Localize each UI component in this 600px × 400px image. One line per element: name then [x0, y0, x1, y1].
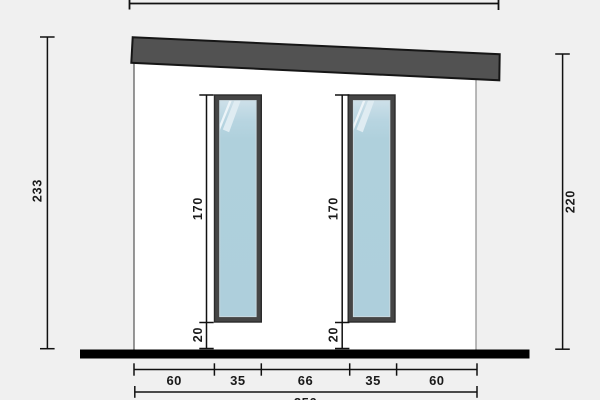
svg-text:256: 256 [294, 395, 317, 400]
svg-text:35: 35 [365, 373, 380, 388]
svg-text:66: 66 [298, 373, 313, 388]
svg-text:220: 220 [564, 190, 578, 213]
svg-text:233: 233 [31, 179, 45, 202]
svg-text:20: 20 [191, 327, 205, 343]
svg-text:170: 170 [191, 197, 205, 220]
svg-text:60: 60 [166, 373, 181, 388]
svg-text:170: 170 [327, 197, 341, 220]
svg-text:20: 20 [327, 327, 341, 343]
svg-text:35: 35 [230, 373, 245, 388]
svg-text:60: 60 [429, 373, 444, 388]
